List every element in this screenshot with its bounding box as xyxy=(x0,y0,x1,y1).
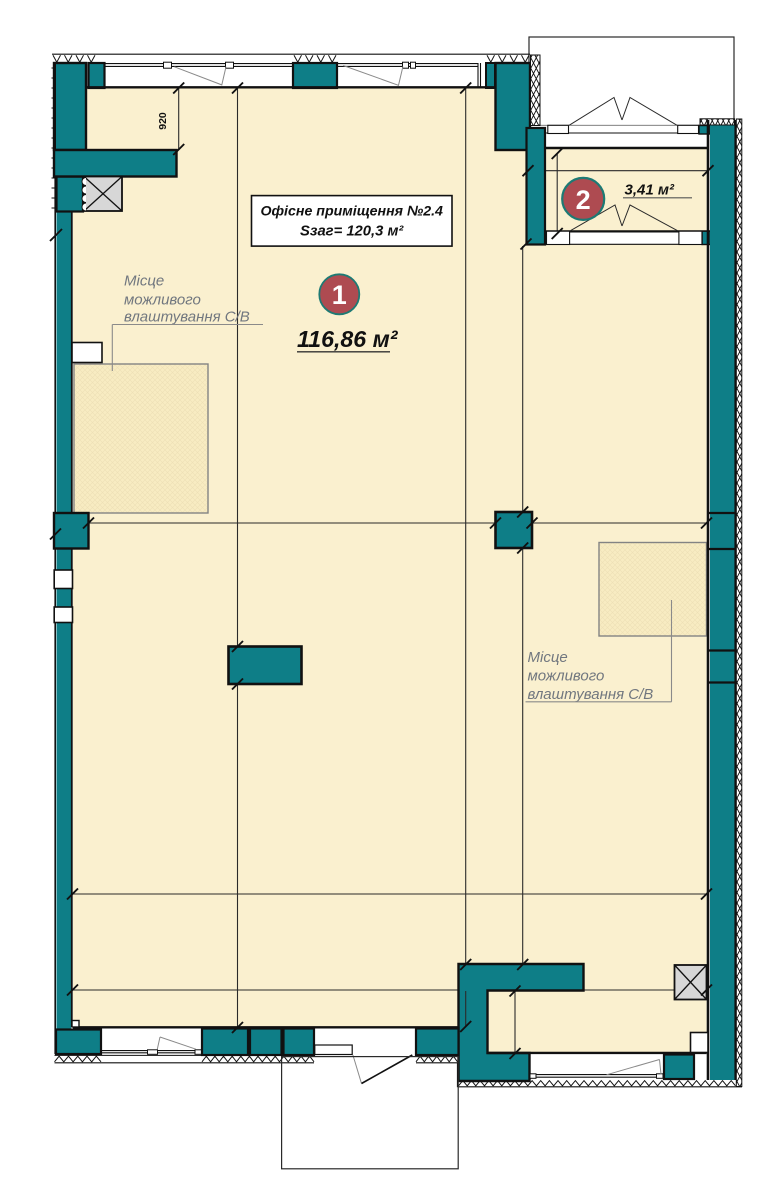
svg-text:влаштування С/В: влаштування С/В xyxy=(528,686,654,703)
svg-text:Місце: Місце xyxy=(124,273,164,290)
svg-text:можливого: можливого xyxy=(528,668,605,685)
svg-text:116,86 м²: 116,86 м² xyxy=(297,326,399,352)
svg-text:920: 920 xyxy=(157,112,169,130)
svg-text:Місце: Місце xyxy=(528,649,568,666)
svg-text:Офісне приміщення №2.4: Офісне приміщення №2.4 xyxy=(260,204,443,220)
svg-text:Sзаг= 120,3 м²: Sзаг= 120,3 м² xyxy=(300,223,404,239)
svg-text:можливого: можливого xyxy=(124,292,201,309)
svg-text:2: 2 xyxy=(576,185,591,215)
svg-text:1: 1 xyxy=(332,280,347,310)
svg-text:влаштування С/В: влаштування С/В xyxy=(124,309,250,326)
svg-text:3,41 м²: 3,41 м² xyxy=(625,182,675,199)
